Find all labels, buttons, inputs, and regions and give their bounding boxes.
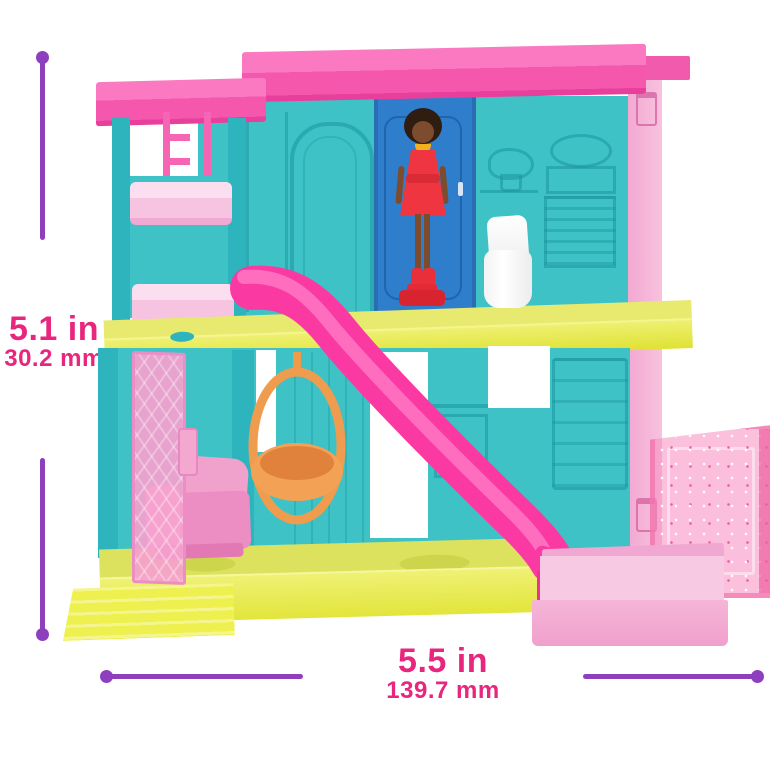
main-roof [242, 44, 646, 102]
bunk-ladder [163, 112, 211, 176]
door-handle [458, 182, 463, 196]
tower-pillar-left [112, 118, 130, 330]
front-steps [61, 583, 235, 641]
product-image: 5.1 in 30.2 mm 5.5 in 139.7 mm [0, 0, 770, 770]
pool [526, 546, 728, 648]
bunk-bed-upper [130, 182, 232, 225]
bunk-ladder-rung [170, 134, 190, 141]
shelf-molding [480, 190, 538, 193]
doll-dress-peplum [406, 174, 440, 183]
doll-dress [400, 150, 446, 216]
roof-ledge [642, 56, 690, 80]
wall-lantern-top-icon [636, 92, 657, 126]
pool-front-wall [532, 600, 728, 646]
lower-pillar-left [98, 348, 118, 558]
dollhouse [0, 0, 770, 770]
mirror-molding [550, 134, 612, 168]
vanity-molding [546, 166, 616, 194]
slide-body [252, 288, 552, 562]
doll-face [412, 121, 434, 143]
door-latch [178, 428, 198, 476]
glitter-tub-rim [759, 429, 770, 593]
bunk-ladder-rung [170, 158, 190, 165]
